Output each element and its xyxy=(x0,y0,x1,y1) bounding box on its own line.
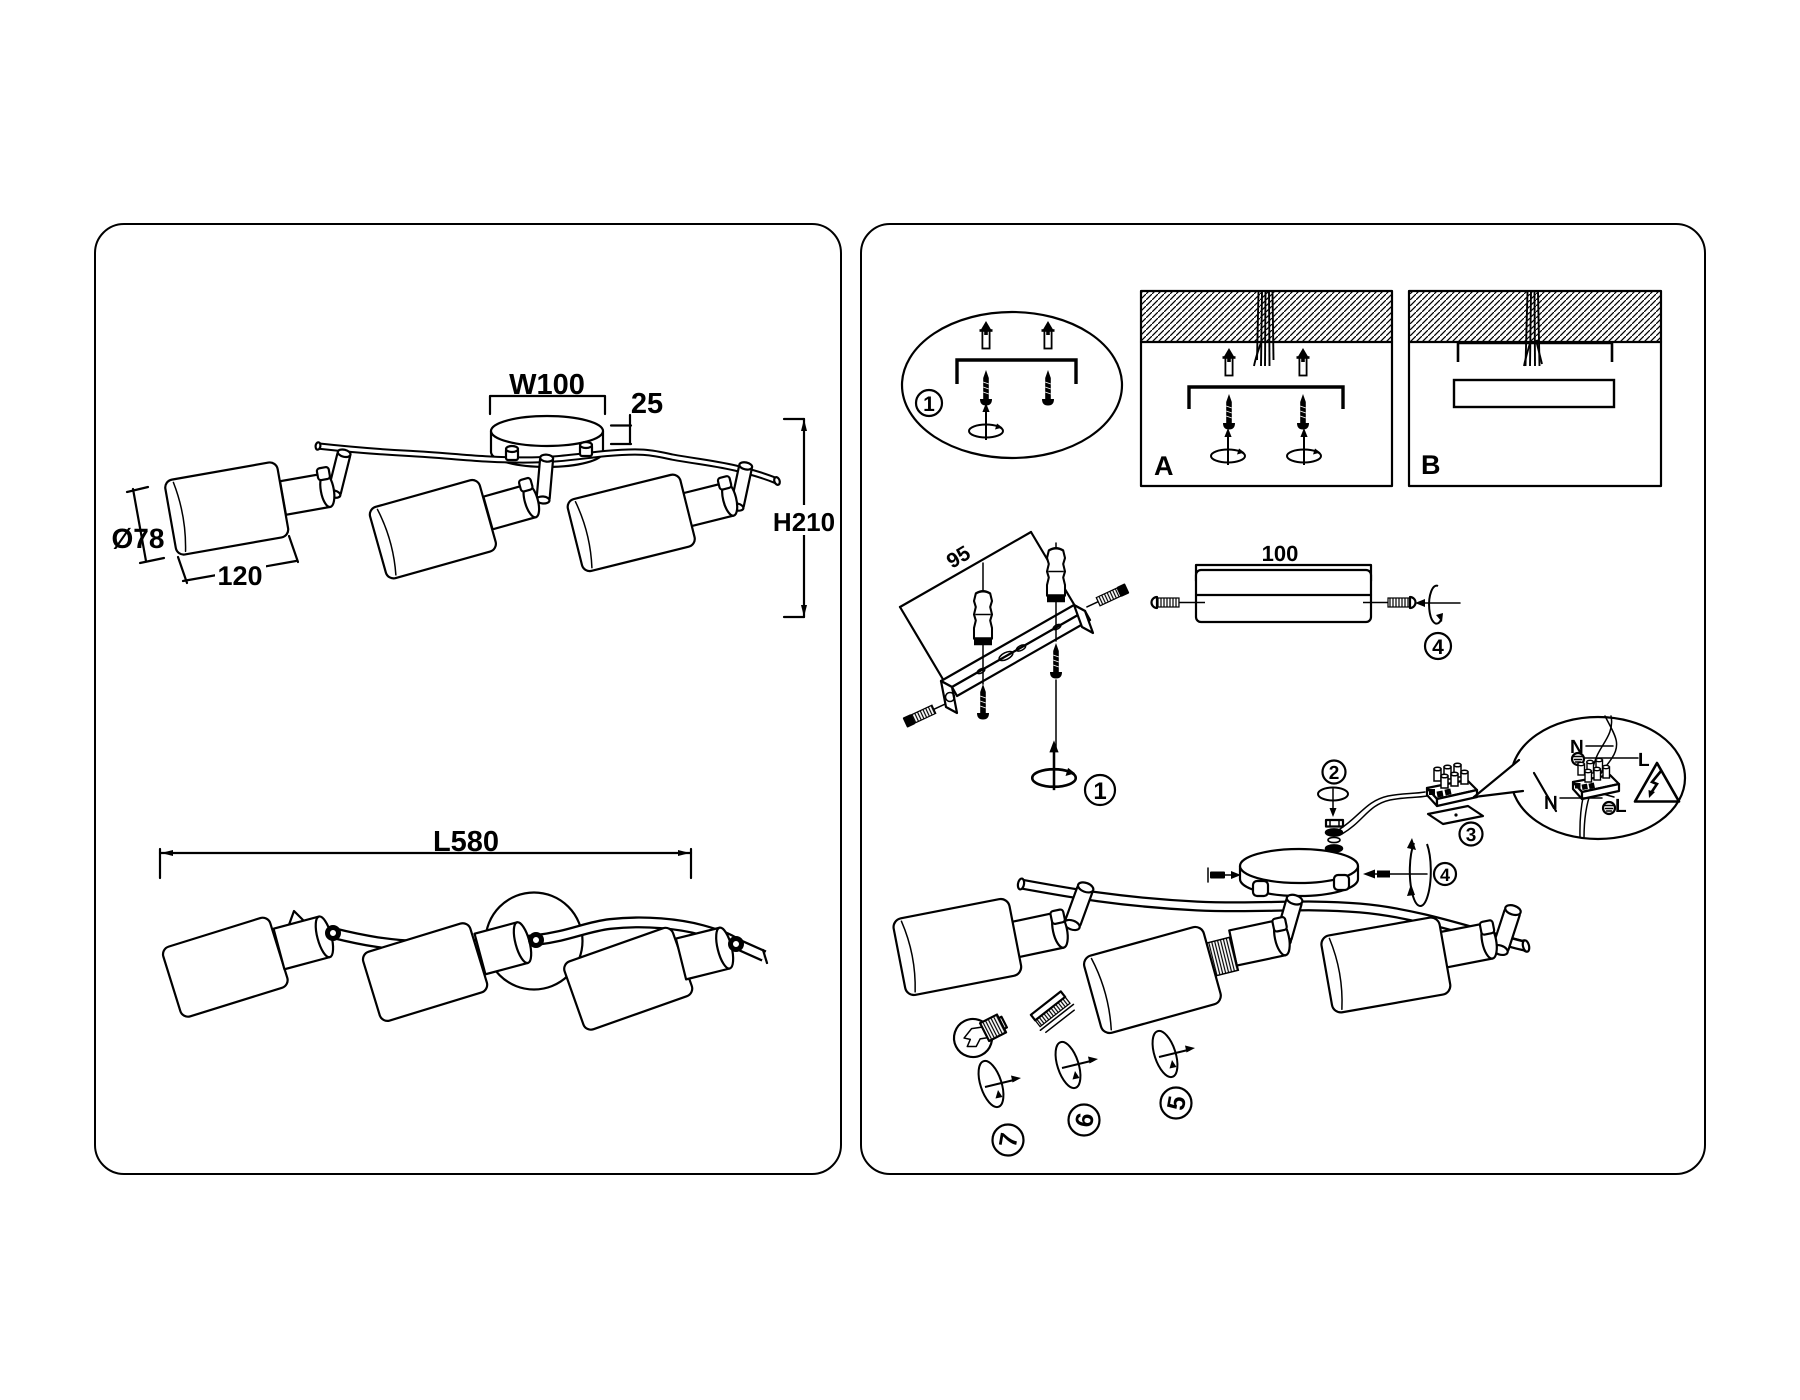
svg-text:H210: H210 xyxy=(773,507,835,537)
svg-text:4: 4 xyxy=(1440,865,1450,885)
svg-text:120: 120 xyxy=(217,561,262,591)
svg-text:L: L xyxy=(1615,796,1627,817)
svg-text:1: 1 xyxy=(1093,778,1106,805)
svg-text:100: 100 xyxy=(1262,541,1299,566)
svg-text:4: 4 xyxy=(1432,636,1444,659)
svg-text:B: B xyxy=(1421,450,1441,480)
svg-text:A: A xyxy=(1154,451,1174,481)
svg-text:Ø78: Ø78 xyxy=(112,523,165,554)
svg-text:1: 1 xyxy=(923,393,935,416)
svg-text:2: 2 xyxy=(1329,763,1340,784)
svg-text:L: L xyxy=(1638,750,1650,771)
svg-text:25: 25 xyxy=(631,388,663,420)
svg-text:3: 3 xyxy=(1466,825,1477,846)
